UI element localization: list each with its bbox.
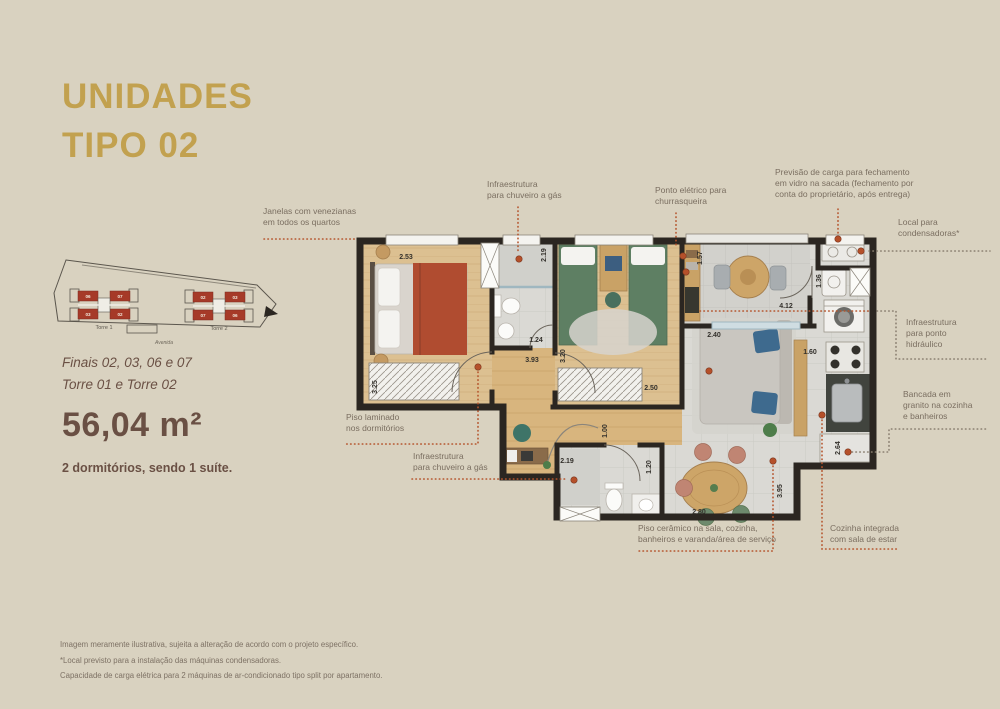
site-entrance-box (127, 325, 157, 333)
annotation-chuveiro-topo: Infraestrutura para chuveiro a gás (487, 179, 597, 201)
footer-disclaimers: Imagem meramente ilustrativa, sujeita a … (60, 637, 382, 684)
plant (763, 423, 777, 437)
water-heater (822, 268, 846, 296)
suite-wardrobe (369, 363, 459, 400)
dimension-label: 2.53 (399, 254, 413, 261)
window (503, 235, 540, 245)
suite-bath-floor (492, 241, 555, 348)
door-arc (530, 325, 553, 348)
leader-dot (516, 256, 522, 262)
bedroom2-wardrobe (558, 368, 642, 401)
entry-door-arc (780, 266, 812, 298)
unit-number: 07 (117, 294, 123, 299)
unit-number: 06 (85, 294, 91, 299)
dining-table (681, 462, 747, 514)
unit-number: 02 (117, 312, 123, 317)
annotation-chuveiro-baixo: Infraestrutura para chuveiro a gás (413, 451, 523, 473)
dimension-labels: 2.533.252.191.243.933.202.501.571.364.12… (372, 248, 842, 516)
leader-dot (835, 236, 841, 242)
title-line-1: UNIDADES (62, 72, 253, 121)
dimension-label: 3.93 (525, 357, 539, 364)
balcony-parapet (686, 234, 808, 243)
sofa (700, 324, 780, 424)
chair (733, 506, 750, 523)
dimension-label: 3.20 (560, 349, 567, 363)
annotation-janelas: Janelas com venezianas em todos os quart… (263, 206, 383, 228)
leader-dot (706, 368, 712, 374)
dimension-label: 2.80 (692, 509, 706, 516)
unit-number: 03 (85, 312, 91, 317)
leader-dot (683, 269, 689, 275)
chair (695, 444, 712, 461)
counter (820, 434, 870, 462)
bedroom2-floor (555, 241, 682, 407)
dimension-label: 1.57 (697, 251, 704, 265)
balcony-floor (682, 241, 810, 326)
street-label: Avenida (154, 340, 173, 346)
annotation-previsao-carga: Previsão de carga para fechamento em vid… (775, 167, 950, 201)
annotation-local-condensadoras: Local para condensadoras* (898, 217, 993, 239)
console (794, 340, 807, 436)
sofa-back (776, 320, 792, 424)
bed-single (629, 245, 667, 345)
living-kitchen-floor (662, 241, 873, 517)
pillow (753, 328, 781, 353)
sliding-glass-door (712, 322, 800, 329)
condenser-unit (822, 244, 864, 261)
leader-lines (264, 207, 990, 551)
dimension-label: 1.00 (602, 424, 609, 438)
leader-dot (571, 477, 577, 483)
bed-single (559, 245, 597, 345)
dorms-text: 2 dormitórios, sendo 1 suíte. (62, 461, 232, 475)
annotation-cozinha-integrada: Cozinha integrada com sala de estar (830, 523, 925, 545)
annotation-bancada-granito: Bancada em granito na cozinha e banheiro… (903, 389, 993, 423)
site-plan: 06 07 03 02 Torre 1 02 03 07 06 Torre 2 … (52, 248, 287, 350)
north-arrow-icon (264, 306, 278, 317)
dimension-label: 3.95 (777, 484, 784, 498)
torres-text: Torre 01 e Torre 02 (62, 374, 232, 396)
suite-bed-cover (413, 263, 467, 355)
suite-bed-headboard (370, 262, 375, 355)
pillow (751, 391, 778, 415)
dimension-label: 2.19 (541, 248, 548, 262)
unit-number: 03 (232, 295, 238, 300)
hall-floor (492, 348, 555, 407)
finais-text: Finais 02, 03, 06 e 07 (62, 352, 232, 374)
annotation-ponto-hidraulico: Infraestrutura para ponto hidráulico (906, 317, 986, 351)
door-arc (555, 353, 595, 393)
window-xbox (560, 507, 600, 521)
shower2 (560, 449, 600, 505)
torre-2: 02 03 07 06 Torre 2 (185, 290, 253, 332)
dimension-label: 2.64 (835, 441, 842, 455)
openings (386, 234, 870, 521)
door-arc (452, 352, 492, 392)
nightstand (374, 354, 388, 368)
living-rug (692, 318, 796, 434)
leader-dot (770, 458, 776, 464)
dimension-label: 2.19 (560, 458, 574, 465)
dimension-label: 1.24 (529, 337, 543, 344)
window (575, 235, 653, 245)
plant (543, 461, 551, 469)
footer-line: Imagem meramente ilustrativa, sujeita a … (60, 637, 382, 653)
desk (600, 245, 627, 291)
barbecue-cabinet (684, 243, 700, 321)
corridor-floor (555, 407, 682, 445)
unit-number: 02 (200, 295, 206, 300)
nightstand (376, 245, 390, 259)
toilet (502, 298, 520, 314)
annotation-piso-ceramico: Piso cerâmico na sala, cozinha, banheiro… (638, 523, 793, 545)
brochure-page: UNIDADES TIPO 02 06 07 03 02 Torre 1 (0, 0, 1000, 709)
annotation-ponto-churrasqueira: Ponto elétrico para churrasqueira (655, 185, 765, 207)
sink (639, 499, 653, 511)
unit-number: 06 (232, 313, 238, 318)
door-arc (604, 445, 640, 481)
leader-dot (819, 412, 825, 418)
stove (826, 342, 864, 372)
window (826, 235, 864, 245)
dimension-label: 1.20 (646, 460, 653, 474)
toilet (606, 489, 622, 511)
leader-dot (858, 248, 864, 254)
dimension-label: 3.25 (372, 380, 379, 394)
chair (714, 265, 730, 289)
chair (729, 447, 746, 464)
unit-details: Finais 02, 03, 06 e 07 Torre 01 e Torre … (62, 352, 232, 475)
dimension-label: 1.60 (803, 349, 817, 356)
sink (498, 323, 514, 339)
suite-floor (363, 241, 492, 407)
suite-shower (500, 243, 553, 287)
leader-dot (475, 364, 481, 370)
unit-area: 56,04 m² (62, 406, 232, 445)
footer-line: *Local previsto para a instalação das má… (60, 653, 382, 669)
title-line-2: TIPO 02 (62, 121, 253, 170)
rug (569, 309, 657, 355)
torre-1-label: Torre 1 (95, 325, 112, 331)
balcony-table (727, 256, 769, 298)
torre-2-label: Torre 2 (210, 326, 227, 332)
window (386, 235, 458, 245)
furniture (369, 243, 870, 526)
suite-bed (375, 264, 467, 354)
leader-dots (475, 236, 864, 483)
site-inner-line (82, 265, 256, 288)
shaft-xbox (481, 243, 499, 288)
floors (363, 241, 873, 517)
dimension-label: 4.12 (779, 303, 793, 310)
pouf (605, 292, 621, 308)
walls (360, 241, 873, 517)
shaft-xbox (850, 268, 870, 296)
arc-lamp (546, 424, 598, 468)
annotation-piso-laminado: Piso laminado nos dormitórios (346, 412, 446, 434)
chair (770, 266, 786, 290)
kitchen-counter (826, 374, 870, 432)
dimension-label: 2.50 (644, 385, 658, 392)
washing-machine (824, 300, 864, 332)
dimension-label: 2.40 (707, 332, 721, 339)
leader-dot (845, 449, 851, 455)
leader-dot (680, 253, 686, 259)
kitchen-sink (832, 384, 862, 422)
page-title: UNIDADES TIPO 02 (62, 72, 253, 170)
leader-line (852, 429, 988, 452)
bathroom2-floor (557, 445, 662, 517)
chair (513, 424, 531, 442)
dimension-label: 1.36 (816, 274, 823, 288)
grill (685, 287, 699, 313)
unit-number: 07 (200, 313, 206, 318)
footer-line: Capacidade de carga elétrica para 2 máqu… (60, 668, 382, 684)
laptop (605, 256, 622, 271)
chair (676, 480, 693, 497)
